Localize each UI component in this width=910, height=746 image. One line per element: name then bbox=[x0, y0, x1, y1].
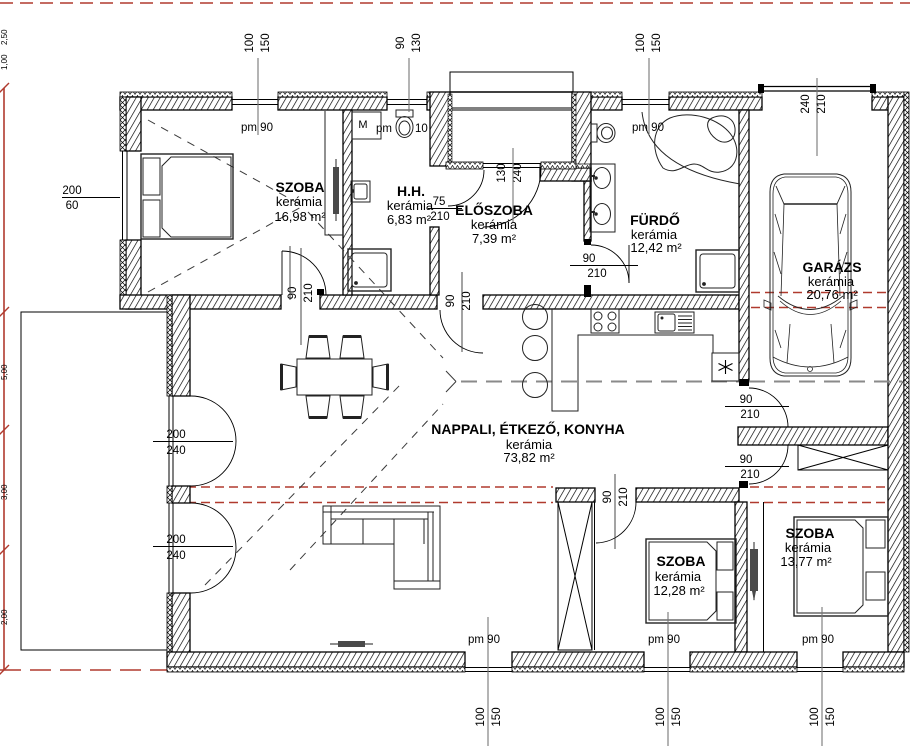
svg-text:90: 90 bbox=[602, 491, 614, 504]
svg-text:pm 90: pm 90 bbox=[648, 634, 680, 646]
svg-text:ELŐSZOBA: ELŐSZOBA bbox=[455, 201, 533, 218]
svg-text:100: 100 bbox=[635, 33, 647, 52]
svg-text:kerámia: kerámia bbox=[276, 194, 323, 209]
svg-text:90: 90 bbox=[287, 287, 299, 300]
svg-text:100: 100 bbox=[475, 707, 487, 726]
svg-text:H.H.: H.H. bbox=[397, 183, 425, 199]
svg-text:210: 210 bbox=[461, 291, 473, 310]
svg-text:pm 90: pm 90 bbox=[241, 122, 273, 134]
svg-text:2,50: 2,50 bbox=[0, 29, 9, 45]
svg-text:150: 150 bbox=[260, 33, 272, 52]
svg-text:kerámia: kerámia bbox=[655, 569, 702, 584]
svg-text:73,82 m²: 73,82 m² bbox=[503, 450, 555, 465]
svg-text:210: 210 bbox=[587, 268, 606, 280]
svg-text:pm 90: pm 90 bbox=[802, 634, 834, 646]
svg-text:10: 10 bbox=[415, 123, 428, 135]
svg-text:130: 130 bbox=[496, 163, 508, 182]
svg-text:150: 150 bbox=[825, 707, 837, 726]
svg-text:210: 210 bbox=[430, 211, 449, 223]
svg-text:90: 90 bbox=[583, 253, 596, 265]
svg-text:13,77 m²: 13,77 m² bbox=[780, 554, 832, 569]
svg-text:7,39 m²: 7,39 m² bbox=[472, 231, 517, 246]
svg-text:20,76 m²: 20,76 m² bbox=[806, 287, 858, 302]
svg-text:100: 100 bbox=[244, 33, 256, 52]
svg-text:3,00: 3,00 bbox=[0, 484, 9, 500]
svg-text:240: 240 bbox=[800, 94, 812, 113]
svg-text:200: 200 bbox=[62, 185, 81, 197]
svg-text:pm 90: pm 90 bbox=[632, 122, 664, 134]
svg-text:240: 240 bbox=[512, 163, 524, 182]
svg-text:210: 210 bbox=[740, 469, 759, 481]
svg-text:2,00: 2,00 bbox=[0, 609, 9, 625]
svg-text:100: 100 bbox=[655, 707, 667, 726]
svg-text:SZOBA: SZOBA bbox=[276, 179, 325, 195]
svg-text:90: 90 bbox=[740, 394, 753, 406]
svg-text:kerámia: kerámia bbox=[471, 217, 518, 232]
svg-text:210: 210 bbox=[303, 283, 315, 302]
svg-text:240: 240 bbox=[166, 445, 185, 457]
svg-text:6,83 m²: 6,83 m² bbox=[387, 212, 432, 227]
svg-text:kerámia: kerámia bbox=[785, 540, 832, 555]
svg-text:GARÁZS: GARÁZS bbox=[802, 259, 861, 275]
svg-text:150: 150 bbox=[491, 707, 503, 726]
svg-text:90: 90 bbox=[395, 37, 407, 50]
svg-text:16,98 m²: 16,98 m² bbox=[274, 209, 326, 224]
svg-text:12,28 m²: 12,28 m² bbox=[653, 583, 705, 598]
svg-text:90: 90 bbox=[740, 454, 753, 466]
svg-text:SZOBA: SZOBA bbox=[786, 525, 835, 541]
svg-text:kerámia: kerámia bbox=[387, 198, 434, 213]
svg-text:pm: pm bbox=[376, 123, 392, 135]
svg-text:12,42 m²: 12,42 m² bbox=[630, 240, 682, 255]
svg-text:NAPPALI, ÉTKEZŐ, KONYHA: NAPPALI, ÉTKEZŐ, KONYHA bbox=[431, 420, 624, 437]
svg-text:75: 75 bbox=[433, 196, 446, 208]
svg-text:210: 210 bbox=[740, 409, 759, 421]
svg-text:200: 200 bbox=[166, 534, 185, 546]
svg-text:SZOBA: SZOBA bbox=[657, 553, 706, 569]
svg-text:M: M bbox=[358, 119, 367, 131]
svg-text:1,00: 1,00 bbox=[0, 54, 9, 70]
svg-text:60: 60 bbox=[66, 200, 79, 212]
svg-text:150: 150 bbox=[671, 707, 683, 726]
svg-text:150: 150 bbox=[651, 33, 663, 52]
svg-text:90: 90 bbox=[445, 295, 457, 308]
svg-text:100: 100 bbox=[809, 707, 821, 726]
svg-text:5,00: 5,00 bbox=[0, 364, 9, 380]
svg-text:240: 240 bbox=[166, 550, 185, 562]
svg-text:210: 210 bbox=[816, 94, 828, 113]
svg-text:210: 210 bbox=[618, 487, 630, 506]
svg-text:FÜRDŐ: FÜRDŐ bbox=[630, 211, 680, 228]
svg-text:130: 130 bbox=[411, 33, 423, 52]
svg-text:200: 200 bbox=[166, 429, 185, 441]
svg-text:pm 90: pm 90 bbox=[468, 634, 500, 646]
